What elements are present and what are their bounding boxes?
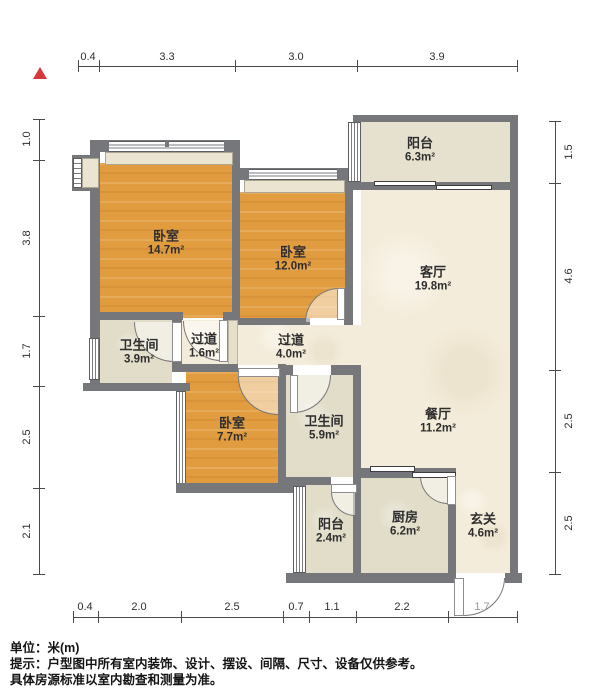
- dimension-tick: [33, 488, 45, 489]
- unit-note: 单位：米(m): [10, 640, 423, 656]
- dimension-value: 1.1: [324, 601, 339, 613]
- dimension-tick: [549, 370, 561, 371]
- window-sill: [244, 180, 345, 193]
- dimension-tick: [33, 160, 45, 161]
- dimension-tick: [309, 611, 310, 623]
- room-label-bedroom-1: 卧室 14.7m²: [148, 229, 184, 258]
- room-label-living-room: 客厅 19.8m²: [415, 265, 451, 294]
- room-area: 14.7m²: [148, 244, 184, 258]
- dimension-value: 2.1: [21, 511, 33, 551]
- door-leaf: [172, 322, 182, 362]
- sliding-door-panel: [436, 185, 492, 190]
- room-name: 阳台: [316, 517, 346, 532]
- room-name: 厨房: [390, 510, 420, 525]
- dimension-line-left: [39, 119, 40, 574]
- room-name: 玄关: [468, 512, 498, 527]
- room-name: 过道: [276, 333, 306, 348]
- north-arrow-icon: [33, 67, 47, 79]
- room-label-dining-room: 餐厅 11.2m²: [420, 407, 456, 436]
- wall: [165, 140, 169, 147]
- dimension-line-bottom: [73, 617, 517, 618]
- wall: [176, 364, 238, 372]
- dimension-line-top: [78, 66, 517, 67]
- wall: [286, 573, 456, 583]
- dimension-value: 3.9: [429, 51, 444, 63]
- wall: [240, 168, 249, 180]
- dimension-tick: [517, 611, 518, 623]
- room-label-bathroom-1: 卫生间 3.9m²: [119, 338, 158, 367]
- hallway-divider: [228, 320, 238, 365]
- room-label-hallway-small: 过道 1.6m²: [189, 332, 219, 361]
- dimension-tick: [73, 611, 74, 623]
- room-name: 阳台: [405, 136, 435, 151]
- window: [348, 122, 361, 182]
- wall: [505, 573, 522, 583]
- room-area: 4.0m²: [276, 348, 306, 362]
- dimension-value: 4.6: [563, 256, 575, 296]
- room-name: 卧室: [217, 416, 247, 431]
- wall: [293, 477, 306, 486]
- door-leaf: [238, 368, 280, 377]
- dimension-tick: [549, 121, 561, 122]
- dimension-value: 2.5: [21, 417, 33, 457]
- dimension-value: 2.2: [394, 601, 409, 613]
- room-label-kitchen: 厨房 6.2m²: [390, 510, 420, 539]
- sliding-door-panel: [374, 181, 436, 186]
- wall: [357, 477, 361, 485]
- sliding-door-panel: [370, 466, 415, 472]
- door-leaf: [331, 484, 357, 493]
- dimension-tick: [235, 60, 236, 72]
- entrance-door-leaf: [454, 578, 464, 616]
- window: [89, 338, 100, 380]
- floor-plan: 卧室 14.7m² 卧室 12.0m² 阳台 6.3m² 客厅 19.8m² 卫…: [0, 0, 600, 697]
- dimension-tick: [78, 60, 79, 72]
- dimension-tick: [549, 183, 561, 184]
- dimension-tick: [549, 472, 561, 473]
- room-label-bedroom-3: 卧室 7.7m²: [217, 416, 247, 445]
- wall: [172, 312, 182, 322]
- window: [248, 169, 342, 180]
- dimension-value: 0.7: [288, 601, 303, 613]
- wall: [353, 115, 517, 122]
- wall: [176, 483, 293, 493]
- room-area: 5.9m²: [304, 429, 343, 443]
- wall: [353, 368, 361, 573]
- room-label-entrance: 玄关 4.6m²: [468, 512, 498, 541]
- room-name: 客厅: [415, 265, 451, 280]
- dimension-tick: [33, 574, 45, 575]
- entrance-door-arc: [464, 578, 505, 616]
- room-area: 6.3m²: [405, 151, 435, 165]
- room-area: 4.6m²: [468, 527, 498, 541]
- room-area: 12.0m²: [275, 260, 311, 274]
- floor-balcony-top: [361, 122, 510, 183]
- dimension-value: 0.4: [77, 601, 92, 613]
- dimension-value: 2.5: [563, 401, 575, 441]
- window: [176, 391, 186, 486]
- door-leaf: [447, 476, 456, 505]
- wall: [286, 365, 293, 375]
- dimension-tick: [283, 611, 284, 623]
- footer-notes: 单位：米(m) 提示：户型图中所有室内装饰、设计、摆设、间隔、尺寸、设备仅供参考…: [10, 640, 423, 688]
- room-label-balcony-bottom: 阳台 2.4m²: [316, 517, 346, 546]
- wall: [344, 318, 353, 325]
- wall: [99, 312, 183, 320]
- window: [293, 486, 306, 573]
- door-leaf: [337, 288, 345, 320]
- room-label-hallway-main: 过道 4.0m²: [276, 333, 306, 362]
- dimension-tick: [33, 316, 45, 317]
- wall: [510, 115, 518, 583]
- room-name: 餐厅: [420, 407, 456, 422]
- room-name: 卧室: [275, 245, 311, 260]
- door-leaf: [219, 320, 228, 362]
- dimension-tick: [181, 611, 182, 623]
- window-sill: [82, 158, 99, 188]
- dimension-tick: [33, 386, 45, 387]
- window-sill: [105, 152, 233, 165]
- room-area: 19.8m²: [415, 280, 451, 294]
- dimension-tick: [357, 60, 358, 72]
- dimension-tick: [549, 574, 561, 575]
- wall: [278, 364, 286, 490]
- wall: [224, 140, 233, 152]
- dimension-line-right: [555, 121, 556, 574]
- room-label-bathroom-2: 卫生间 5.9m²: [304, 414, 343, 443]
- wall: [100, 140, 109, 152]
- room-area: 6.2m²: [390, 525, 420, 539]
- room-area: 2.4m²: [316, 532, 346, 546]
- tip-note-line2: 具体房源标准以室内勘查和测量为准。: [10, 672, 423, 688]
- tip-note-line1: 提示：户型图中所有室内装饰、设计、摆设、间隔、尺寸、设备仅供参考。: [10, 656, 423, 672]
- wall: [83, 383, 190, 391]
- room-label-balcony-top: 阳台 6.3m²: [405, 136, 435, 165]
- room-name: 卫生间: [119, 338, 158, 353]
- door-leaf: [290, 375, 298, 413]
- dimension-value: 1.0: [21, 119, 33, 159]
- room-name: 卫生间: [304, 414, 343, 429]
- dimension-value: 1.5: [563, 132, 575, 172]
- room-area: 11.2m²: [420, 422, 456, 436]
- dimension-tick: [98, 611, 99, 623]
- room-area: 1.6m²: [189, 347, 219, 361]
- dimension-value: 1.7: [21, 331, 33, 371]
- wall: [345, 168, 353, 325]
- dimension-value: 3.3: [159, 51, 174, 63]
- dimension-value: 3.8: [21, 218, 33, 258]
- dimension-value: 3.0: [288, 51, 303, 63]
- room-name: 卧室: [148, 229, 184, 244]
- dimension-tick: [517, 60, 518, 72]
- dimension-tick: [356, 611, 357, 623]
- room-label-bedroom-2: 卧室 12.0m²: [275, 245, 311, 274]
- room-area: 7.7m²: [217, 431, 247, 445]
- wall: [448, 504, 456, 575]
- window: [73, 158, 82, 188]
- dimension-value: 2.0: [131, 601, 146, 613]
- wall: [228, 318, 310, 325]
- room-area: 3.9m²: [119, 353, 158, 367]
- dimension-value: 2.5: [563, 503, 575, 543]
- dimension-tick: [448, 611, 449, 623]
- dimension-value: 2.5: [224, 601, 239, 613]
- room-name: 过道: [189, 332, 219, 347]
- dimension-tick: [99, 60, 100, 72]
- dimension-tick: [33, 119, 45, 120]
- dimension-value: 0.4: [80, 51, 95, 63]
